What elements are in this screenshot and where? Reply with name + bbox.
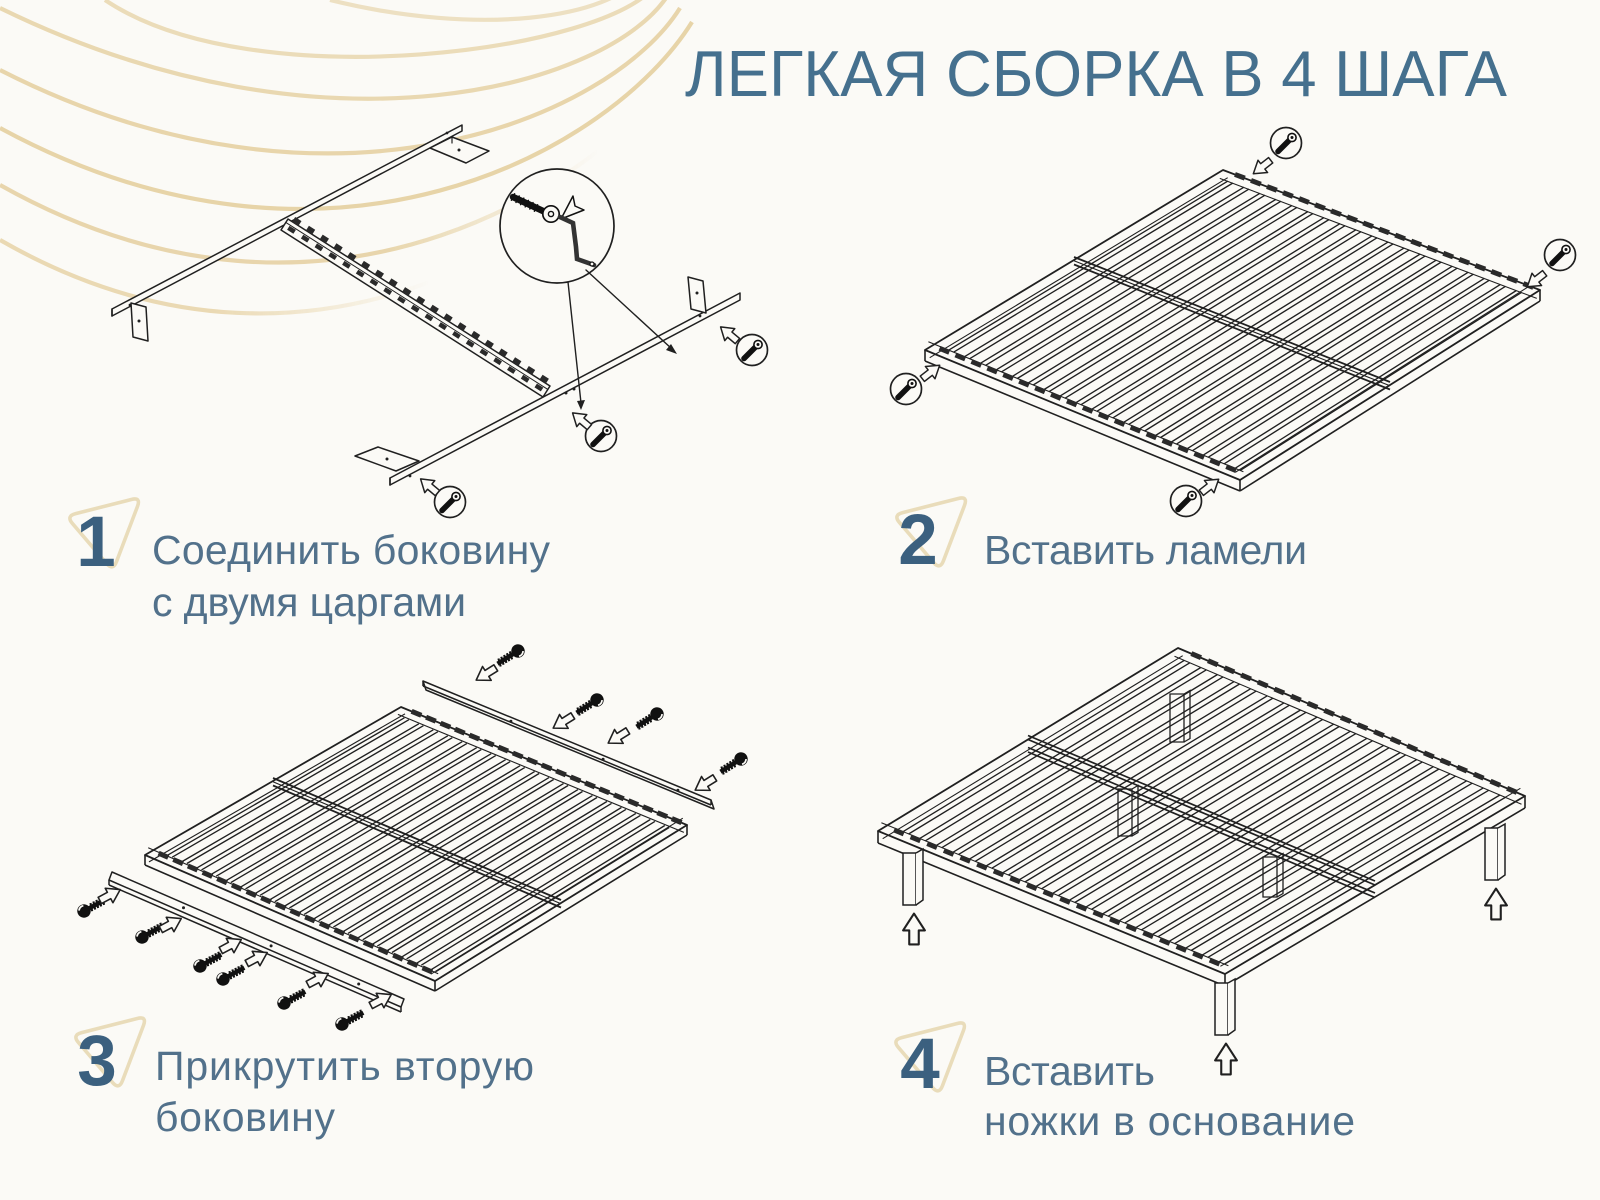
- svg-text:3: 3: [77, 1022, 117, 1101]
- svg-text:Прикрутить вторую: Прикрутить вторую: [155, 1043, 534, 1089]
- svg-text:Соединить боковину: Соединить боковину: [152, 527, 551, 573]
- svg-text:Вставить ламели: Вставить ламели: [984, 527, 1307, 573]
- svg-text:2: 2: [898, 501, 938, 580]
- svg-text:1: 1: [76, 503, 116, 582]
- svg-text:с двумя царгами: с двумя царгами: [152, 579, 466, 625]
- svg-text:ЛЕГКАЯ СБОРКА В 4 ШАГА: ЛЕГКАЯ СБОРКА В 4 ШАГА: [685, 37, 1508, 110]
- svg-text:боковину: боковину: [155, 1094, 336, 1140]
- svg-text:ножки в основание: ножки в основание: [984, 1098, 1355, 1144]
- svg-text:Вставить: Вставить: [984, 1048, 1155, 1094]
- svg-text:4: 4: [900, 1025, 940, 1104]
